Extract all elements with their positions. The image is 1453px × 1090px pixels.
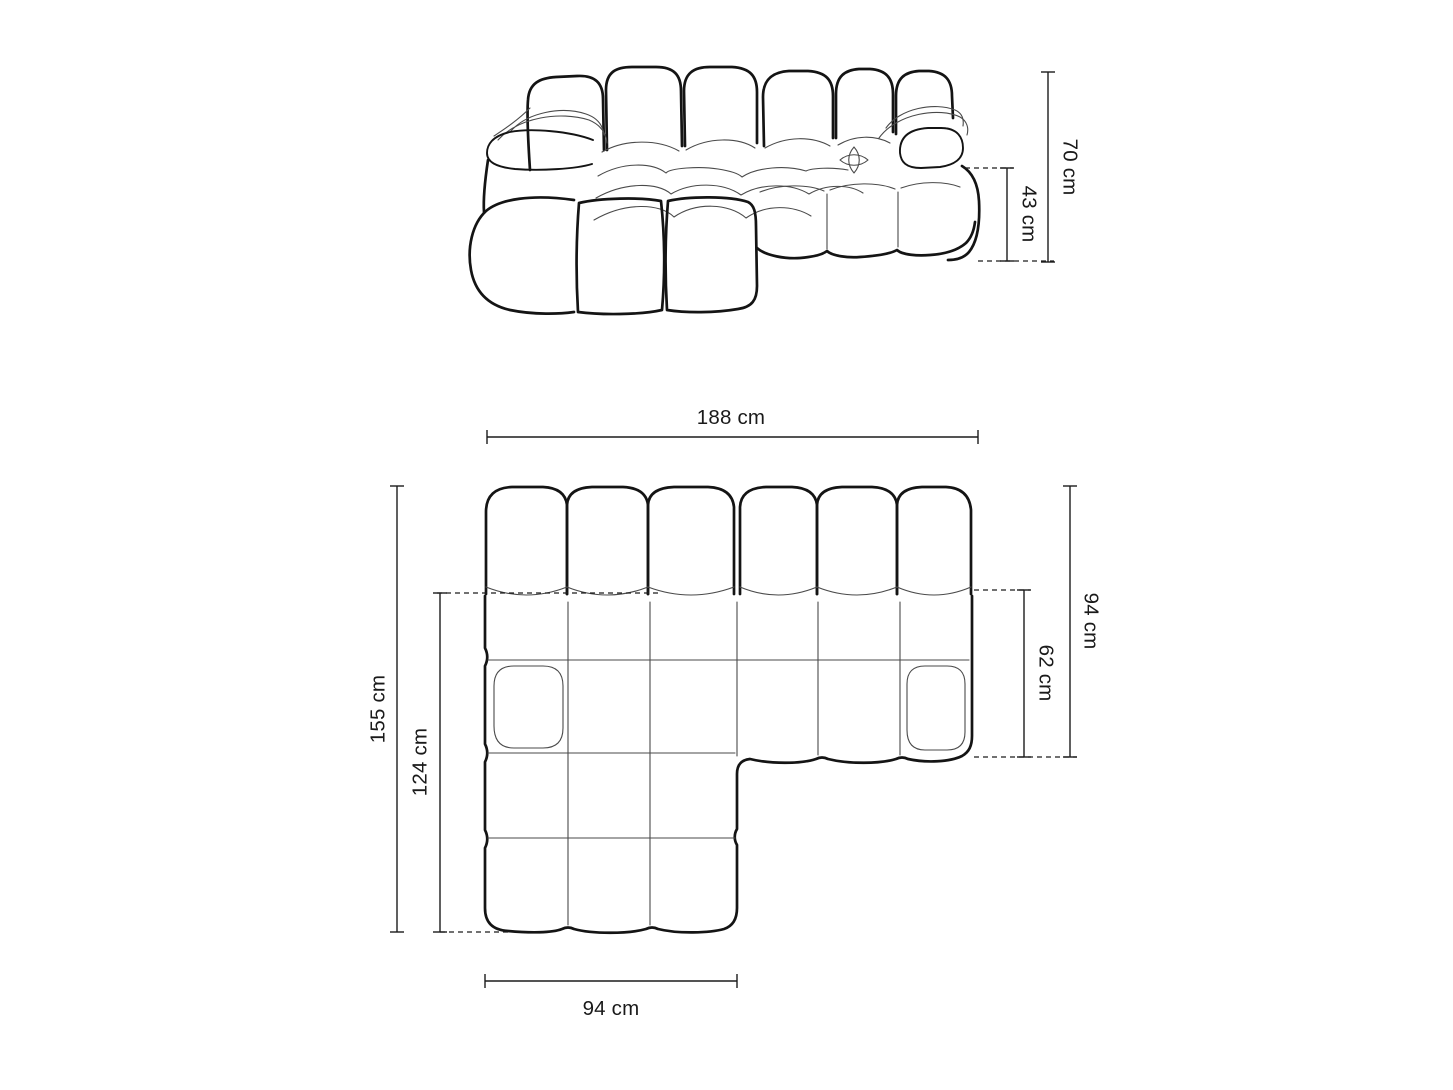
back-cushion-2 bbox=[606, 67, 682, 150]
chaise-cushion-2 bbox=[577, 199, 665, 315]
plan-back-cushion-2 bbox=[567, 487, 648, 594]
tuft-row bbox=[598, 165, 848, 177]
plan-back-cushion-6 bbox=[897, 487, 971, 594]
cushion-bottom-arc bbox=[897, 587, 971, 595]
label-seat-depth: 62 cm bbox=[1035, 645, 1058, 702]
inner-cushion-outline bbox=[494, 666, 563, 748]
plan-back-cushion-3 bbox=[648, 487, 734, 594]
front-armrests bbox=[487, 128, 963, 170]
left-outer-edge bbox=[484, 160, 488, 212]
chaise-cushion-1 bbox=[470, 197, 574, 313]
tuft-star bbox=[840, 155, 868, 166]
back-cushion-1 bbox=[528, 76, 604, 170]
right-seat-bottom bbox=[757, 222, 975, 258]
front-elevation-drawing bbox=[470, 67, 980, 314]
right-armrest-pill bbox=[900, 128, 963, 168]
dimension-line-seat-height bbox=[1000, 168, 1014, 261]
dimension-line-chaise-depth bbox=[433, 593, 447, 932]
back-cushion-3 bbox=[684, 67, 757, 146]
dimension-line-right-depth bbox=[1063, 486, 1077, 757]
underback-arc bbox=[765, 139, 830, 148]
tuft-row bbox=[594, 206, 811, 220]
seat-top-arc bbox=[901, 183, 960, 188]
front-back-cushions bbox=[528, 67, 953, 170]
tuft-star bbox=[849, 147, 860, 173]
cushion-bottom-arc bbox=[740, 587, 817, 595]
back-cushion-5 bbox=[836, 69, 893, 138]
plan-view-drawing bbox=[485, 487, 972, 933]
dimension-line-total-height bbox=[1041, 72, 1055, 262]
plan-back-cushion-4 bbox=[740, 487, 817, 594]
cushion-bottom-arc bbox=[648, 587, 734, 595]
label-chaise-depth: 124 cm bbox=[408, 728, 431, 796]
dimension-line-total-depth bbox=[390, 486, 404, 932]
dimension-line-total-width bbox=[487, 430, 978, 444]
cushion-bottom-arc bbox=[817, 587, 897, 595]
underback-arc bbox=[686, 140, 755, 150]
dimension-line-chaise-width bbox=[485, 974, 737, 988]
plan-back-cushion-1 bbox=[486, 487, 567, 594]
cushion-bottom-arc bbox=[486, 587, 567, 595]
cushion-bottom-arc bbox=[567, 587, 648, 595]
label-total-height: 70 cm bbox=[1059, 139, 1082, 196]
label-total-width: 188 cm bbox=[697, 406, 765, 429]
left-armrest-pill bbox=[487, 130, 593, 170]
chaise-cushion-3 bbox=[666, 197, 757, 312]
underback-arc bbox=[602, 142, 679, 152]
inner-cushion-outline bbox=[907, 666, 965, 750]
plan-back-cushions bbox=[486, 487, 971, 594]
tuft-row bbox=[596, 185, 863, 198]
plan-body-outline bbox=[485, 596, 972, 933]
label-seat-height: 43 cm bbox=[1018, 186, 1041, 243]
dimension-line-seat-depth bbox=[1017, 590, 1031, 757]
seat-top-arc bbox=[830, 184, 895, 190]
diagram-canvas: 70 cm 43 cm 188 cm 155 cm 124 cm 94 cm 6… bbox=[0, 0, 1453, 1090]
plan-back-cushion-5 bbox=[817, 487, 897, 594]
back-cushion-4 bbox=[763, 71, 833, 146]
label-chaise-width: 94 cm bbox=[583, 997, 640, 1020]
underback-arc bbox=[838, 137, 890, 145]
back-cushion-6 bbox=[896, 71, 953, 134]
front-body bbox=[470, 160, 980, 314]
label-total-depth: 155 cm bbox=[366, 675, 389, 743]
plan-grid-lines bbox=[488, 602, 969, 925]
sofa-dimension-diagram: 70 cm 43 cm 188 cm 155 cm 124 cm 94 cm 6… bbox=[0, 0, 1453, 1090]
label-right-depth: 94 cm bbox=[1080, 593, 1103, 650]
